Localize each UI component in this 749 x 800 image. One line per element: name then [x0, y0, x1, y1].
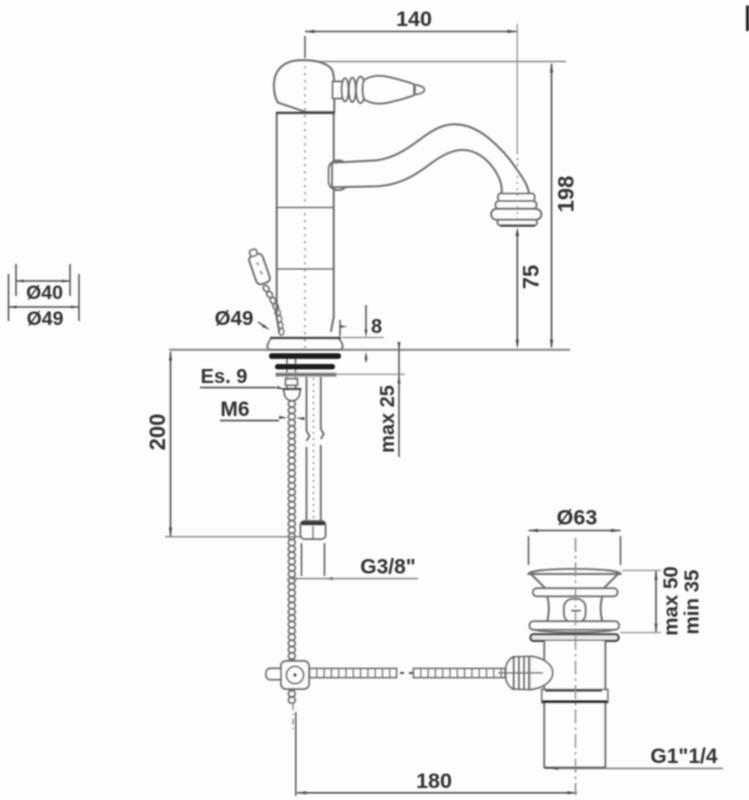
- svg-text:198: 198: [554, 176, 579, 213]
- svg-text:Ø63: Ø63: [557, 506, 598, 530]
- svg-text:G1"1/4: G1"1/4: [650, 745, 717, 768]
- svg-text:Ø40: Ø40: [26, 282, 63, 304]
- svg-text:M6: M6: [220, 398, 249, 421]
- svg-text:Ø49: Ø49: [27, 308, 64, 330]
- svg-text:140: 140: [396, 7, 432, 31]
- svg-text:75: 75: [519, 265, 544, 289]
- svg-text:min 35: min 35: [681, 570, 704, 635]
- svg-text:max 50: max 50: [660, 566, 683, 636]
- svg-text:max 25: max 25: [377, 385, 399, 453]
- svg-text:Es. 9: Es. 9: [201, 366, 248, 388]
- svg-text:200: 200: [145, 414, 170, 451]
- svg-text:Ø49: Ø49: [215, 307, 254, 330]
- svg-text:8: 8: [371, 316, 382, 338]
- svg-text:180: 180: [416, 769, 452, 793]
- svg-text:G3/8": G3/8": [360, 556, 415, 579]
